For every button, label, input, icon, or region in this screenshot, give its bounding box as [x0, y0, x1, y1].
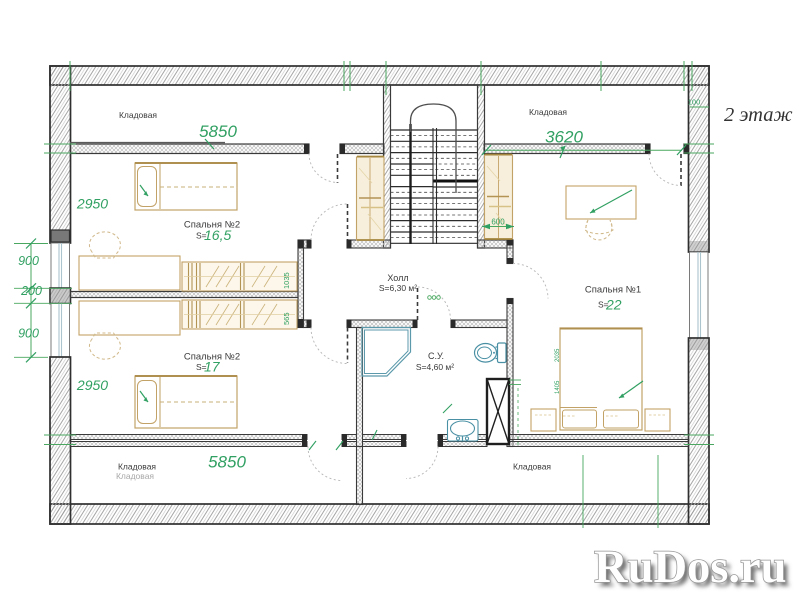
svg-text:Кладовая: Кладовая	[529, 107, 567, 117]
svg-text:565: 565	[282, 312, 291, 325]
svg-text:Спальня №1: Спальня №1	[585, 285, 641, 296]
svg-text:900: 900	[18, 254, 39, 268]
svg-text:2 этаж: 2 этаж	[724, 104, 793, 126]
svg-text:17: 17	[204, 359, 221, 375]
svg-text:1035: 1035	[282, 272, 291, 289]
svg-text:RuDos.ru: RuDos.ru	[594, 542, 787, 593]
svg-text:Кладовая: Кладовая	[118, 462, 156, 472]
svg-text:Холл: Холл	[387, 273, 408, 283]
svg-text:S=6,30 м²: S=6,30 м²	[379, 283, 417, 293]
svg-text:200: 200	[20, 284, 42, 298]
svg-text:600: 600	[491, 218, 505, 227]
svg-text:5850: 5850	[208, 453, 246, 472]
svg-text:5850: 5850	[199, 122, 237, 141]
svg-text:3620: 3620	[545, 128, 583, 147]
svg-text:2950: 2950	[76, 377, 108, 393]
svg-text:С.У.: С.У.	[428, 351, 444, 361]
svg-text:2035: 2035	[555, 348, 561, 362]
svg-text:100: 100	[688, 98, 701, 107]
svg-text:S=4,60 м²: S=4,60 м²	[416, 362, 454, 372]
svg-text:2950: 2950	[76, 196, 108, 212]
svg-text:16,5: 16,5	[204, 227, 231, 243]
svg-text:Кладовая: Кладовая	[119, 110, 157, 120]
svg-text:Кладовая: Кладовая	[513, 462, 551, 472]
svg-text:22: 22	[605, 297, 622, 313]
svg-text:1405: 1405	[555, 380, 561, 394]
svg-text:900: 900	[18, 327, 39, 341]
svg-text:Кладовая: Кладовая	[116, 471, 154, 481]
